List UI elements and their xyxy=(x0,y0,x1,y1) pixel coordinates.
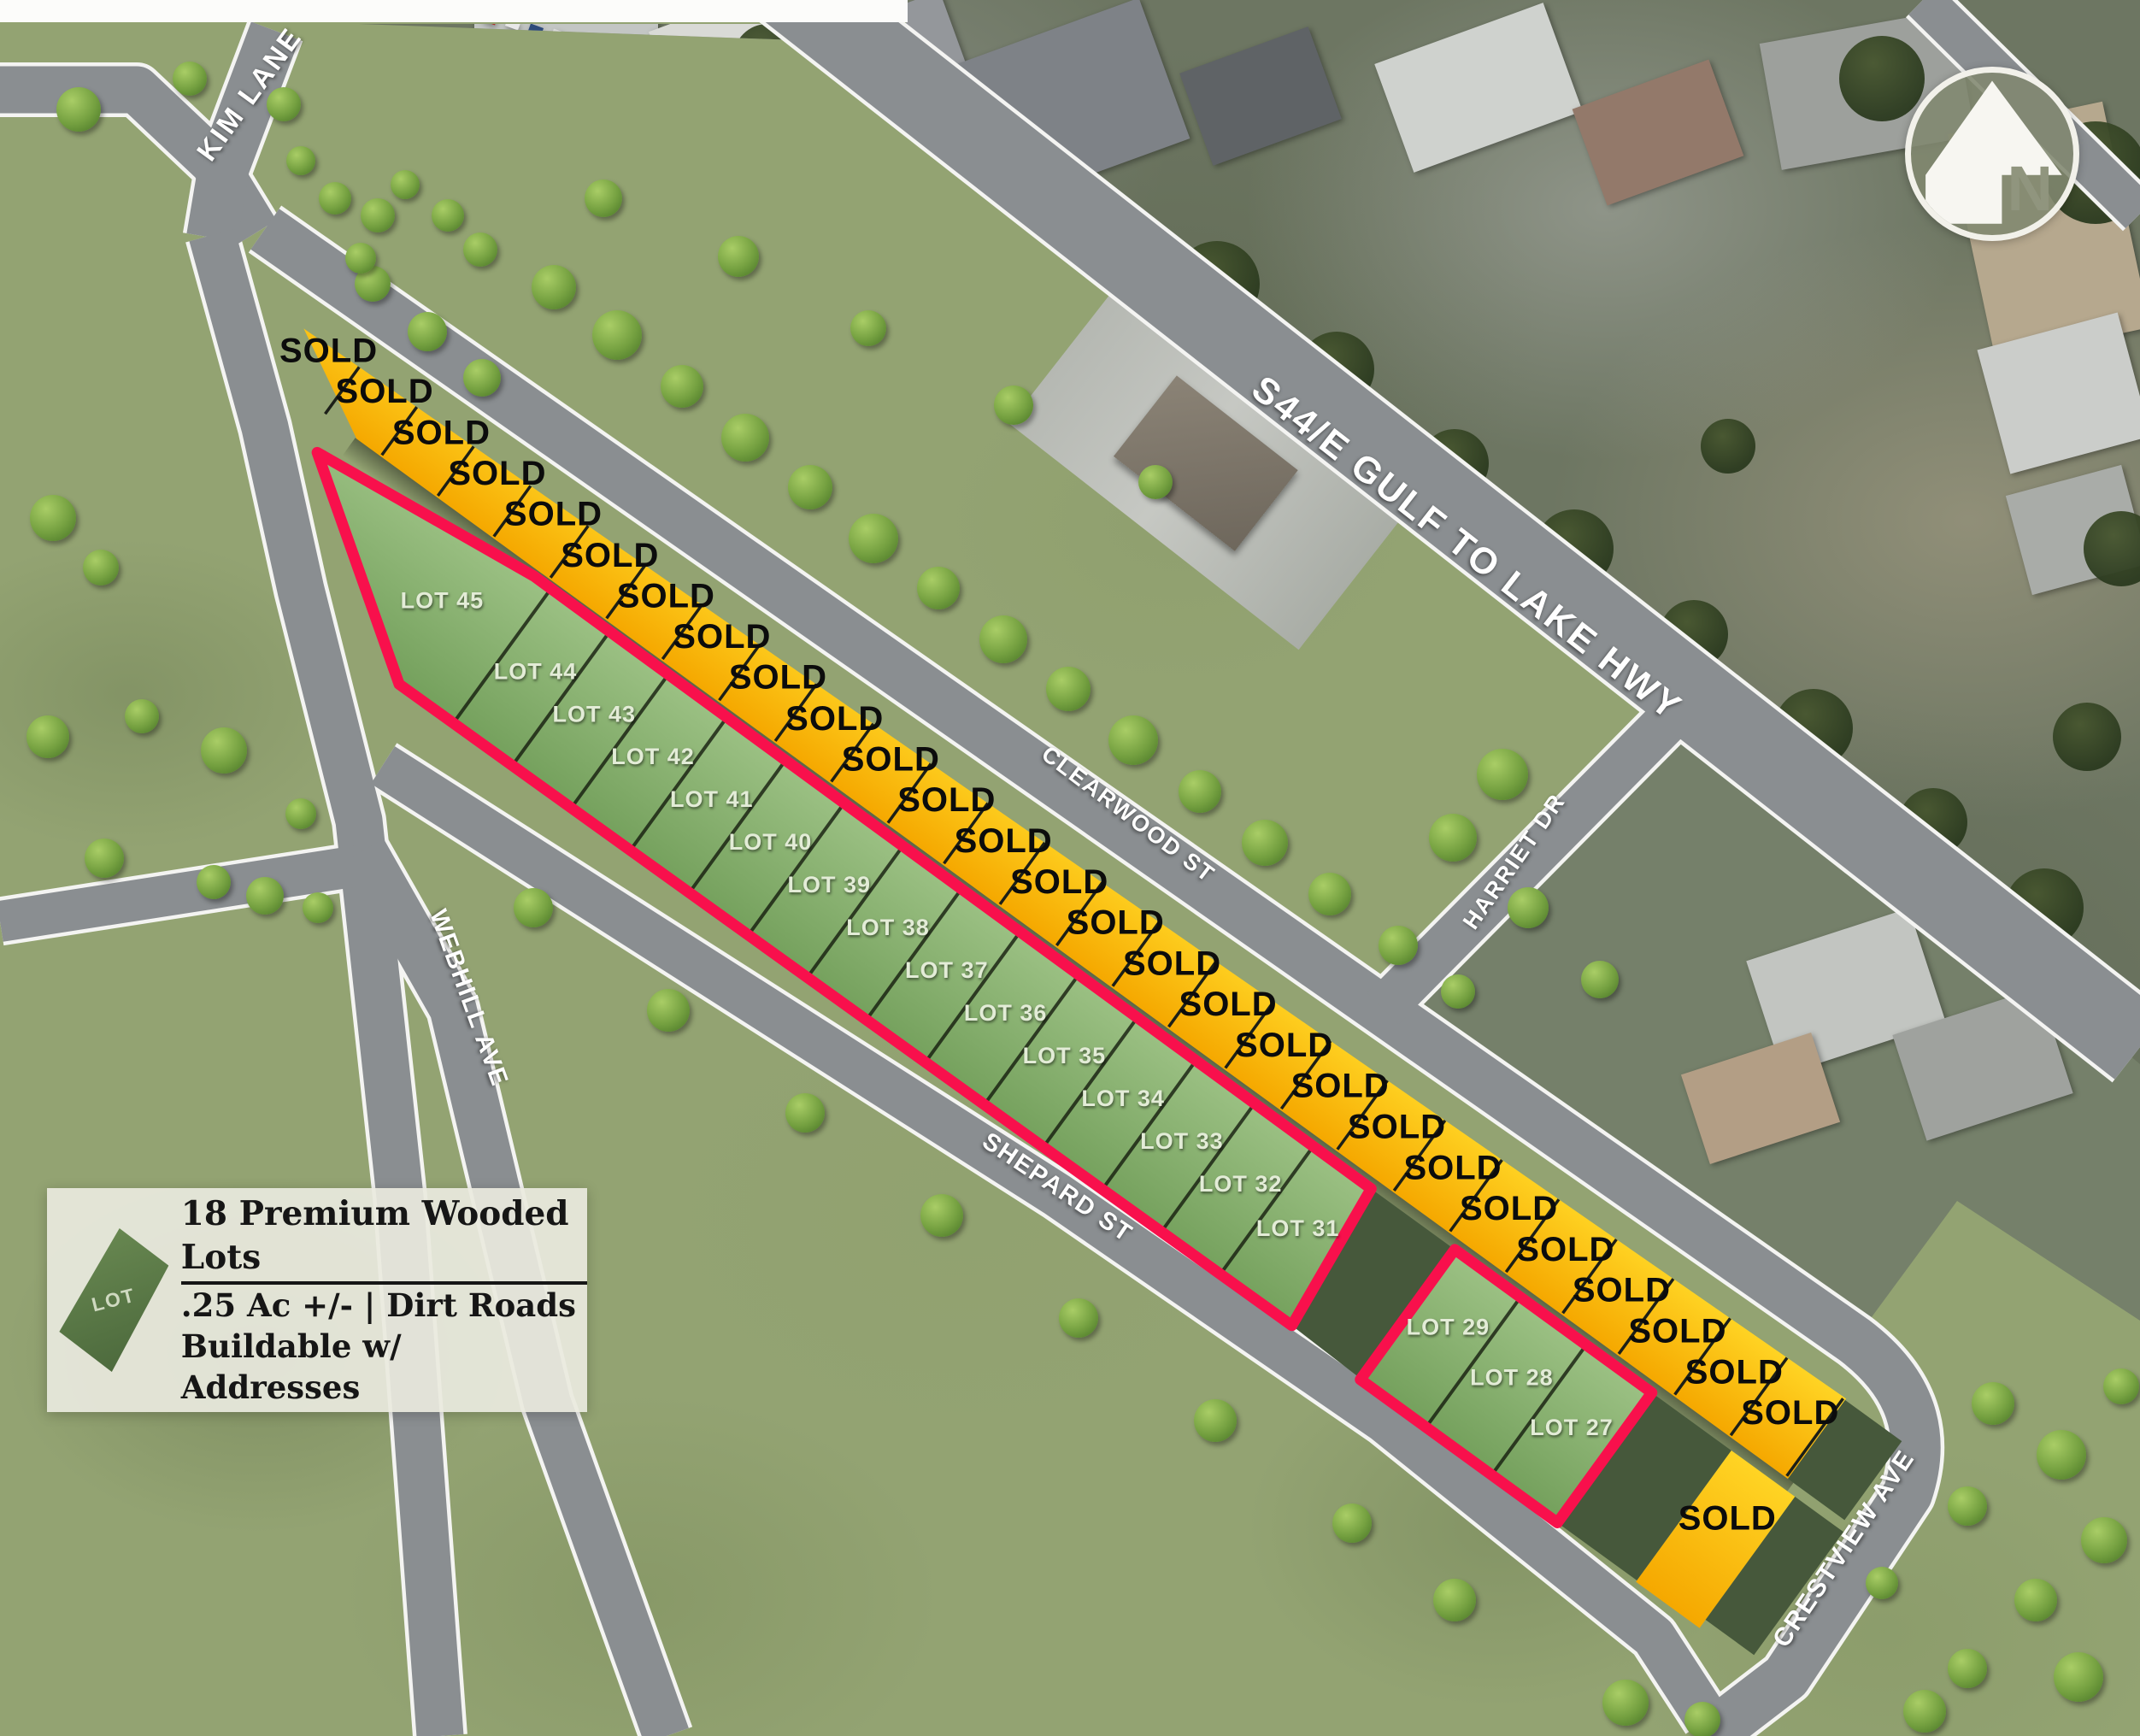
lot-label-lot-45: LOT 45 xyxy=(386,586,497,615)
lot-label-lot-43: LOT 43 xyxy=(538,699,650,728)
tree-icon xyxy=(1332,1504,1372,1543)
tree-icon xyxy=(1138,465,1173,499)
tree-icon xyxy=(1903,1690,1946,1733)
lot-label-lot-27: LOT 27 xyxy=(1516,1413,1627,1442)
sold-label: SOLD xyxy=(726,659,832,697)
sold-label: SOLD xyxy=(781,700,887,738)
sold-label-crestview: SOLD xyxy=(1674,1499,1780,1537)
tree-icon xyxy=(197,865,231,899)
tree-icon xyxy=(463,359,501,397)
tree-icon xyxy=(1108,715,1158,765)
tree-icon xyxy=(585,179,622,217)
tree-icon xyxy=(1948,1649,1987,1688)
tree-icon xyxy=(1866,1567,1898,1599)
tree-icon xyxy=(1179,770,1221,813)
lot-label-lot-32: LOT 32 xyxy=(1185,1169,1296,1198)
sold-label: SOLD xyxy=(1343,1108,1449,1145)
tree-icon xyxy=(1379,926,1418,965)
tree-icon xyxy=(432,199,464,232)
tree-icon xyxy=(920,1194,963,1237)
tree-icon xyxy=(1508,887,1549,928)
legend-box: LOT 18 Premium Wooded Lots .25 Ac +/- | … xyxy=(47,1188,587,1412)
tree-icon xyxy=(514,888,553,927)
tree-icon xyxy=(788,465,832,509)
tree-icon xyxy=(1684,1702,1720,1736)
tree-icon xyxy=(850,310,886,346)
lot-label-lot-37: LOT 37 xyxy=(891,956,1002,985)
sold-label: SOLD xyxy=(556,536,662,574)
tree-icon xyxy=(1308,873,1351,915)
tree-icon xyxy=(994,385,1033,425)
tree-icon xyxy=(785,1093,825,1133)
tree-icon xyxy=(718,236,759,277)
sold-label: SOLD xyxy=(1513,1231,1619,1268)
sold-label: SOLD xyxy=(1568,1272,1674,1309)
lot-sample-label: LOT xyxy=(90,1284,138,1317)
tree-icon xyxy=(1948,1486,1987,1526)
tree-icon xyxy=(1602,1680,1649,1726)
tree-icon xyxy=(532,265,576,309)
lot-label-lot-38: LOT 38 xyxy=(832,913,944,942)
tree-icon xyxy=(463,232,497,267)
tree-icon xyxy=(201,727,247,774)
sold-label: SOLD xyxy=(501,496,607,533)
tree-icon xyxy=(1972,1382,2014,1425)
tree-icon xyxy=(1581,961,1619,998)
tree-icon xyxy=(408,312,447,351)
tree-icon xyxy=(1477,749,1528,800)
sold-label: SOLD xyxy=(1681,1353,1787,1391)
sold-label: SOLD xyxy=(332,373,438,410)
legend-line-buildable: Buildable w/ Addresses xyxy=(181,1326,587,1408)
sold-label: SOLD xyxy=(1737,1394,1843,1432)
north-compass: N xyxy=(1905,67,2079,241)
tree-icon xyxy=(1441,974,1475,1009)
lot-label-lot-42: LOT 42 xyxy=(597,742,708,771)
tree-icon xyxy=(303,892,333,923)
tree-icon xyxy=(26,715,69,758)
sold-label: SOLD xyxy=(838,740,944,778)
tree-icon xyxy=(2081,1517,2127,1563)
tree-icon xyxy=(1242,820,1288,866)
lot-label-lot-41: LOT 41 xyxy=(656,785,767,814)
tree-icon xyxy=(319,182,351,215)
tree-icon xyxy=(285,798,316,829)
lot-label-lot-29: LOT 29 xyxy=(1392,1313,1503,1342)
tree-icon xyxy=(2014,1579,2057,1621)
tree-icon xyxy=(1429,814,1477,862)
tree-icon xyxy=(267,87,301,121)
sold-label: SOLD xyxy=(894,781,1000,819)
tree-icon xyxy=(979,615,1027,663)
lot-label-lot-31: LOT 31 xyxy=(1243,1214,1354,1243)
lot-label-lot-35: LOT 35 xyxy=(1008,1041,1120,1070)
sold-label: SOLD xyxy=(1400,1149,1506,1186)
tree-icon xyxy=(661,365,703,408)
lot-label-lot-34: LOT 34 xyxy=(1067,1084,1179,1113)
tree-icon xyxy=(56,87,101,132)
legend-icon-wrap: LOT xyxy=(47,1228,181,1372)
tree-icon xyxy=(286,146,315,175)
lot-label-lot-28: LOT 28 xyxy=(1456,1363,1567,1392)
tree-icon xyxy=(361,198,395,232)
tree-icon xyxy=(391,170,420,199)
tree-icon xyxy=(1433,1579,1476,1621)
tree-icon xyxy=(647,989,690,1032)
tree-icon xyxy=(2037,1430,2086,1480)
sold-label: SOLD xyxy=(1007,863,1113,901)
tree-icon xyxy=(125,699,159,733)
sold-label: SOLD xyxy=(1175,986,1281,1023)
tree-icon xyxy=(849,514,898,563)
tree-icon xyxy=(592,310,642,360)
lot-label-lot-40: LOT 40 xyxy=(715,827,826,856)
sold-label: SOLD xyxy=(388,414,494,451)
sold-label: SOLD xyxy=(613,577,719,615)
tree-icon xyxy=(173,62,207,96)
sold-label: SOLD xyxy=(1287,1068,1393,1105)
tree-icon xyxy=(917,567,960,609)
tree-icon xyxy=(2054,1652,2103,1702)
tree-icon xyxy=(85,839,124,878)
legend-text: 18 Premium Wooded Lots .25 Ac +/- | Dirt… xyxy=(181,1192,587,1408)
lot-label-lot-33: LOT 33 xyxy=(1126,1127,1238,1156)
tree-icon xyxy=(83,550,119,586)
sold-label: SOLD xyxy=(1232,1027,1337,1064)
wooded-lots-site-map: SOLDSOLDSOLDSOLDSOLDSOLDSOLDSOLDSOLDSOLD… xyxy=(0,0,2140,1736)
sold-label: SOLD xyxy=(1062,904,1168,942)
sold-label: SOLD xyxy=(1625,1312,1731,1350)
sold-label: SOLD xyxy=(1456,1190,1562,1227)
legend-title: 18 Premium Wooded Lots xyxy=(181,1192,587,1284)
sold-label: SOLD xyxy=(1119,945,1225,982)
tree-icon xyxy=(2103,1368,2139,1404)
lot-label-lot-39: LOT 39 xyxy=(773,870,885,899)
tree-icon xyxy=(246,877,284,915)
lot-sample-icon: LOT xyxy=(59,1228,168,1372)
sold-label: SOLD xyxy=(950,822,1056,860)
tree-icon xyxy=(721,414,769,462)
tree-icon xyxy=(1046,667,1091,711)
lot-label-lot-44: LOT 44 xyxy=(479,656,591,686)
top-white-strip xyxy=(0,0,908,22)
tree-icon xyxy=(1194,1399,1237,1442)
tree-icon xyxy=(345,243,376,274)
sold-label: SOLD xyxy=(669,618,775,656)
legend-line-acreage: .25 Ac +/- | Dirt Roads xyxy=(181,1285,587,1326)
north-letter: N xyxy=(2008,152,2053,225)
tree-icon xyxy=(1059,1298,1098,1338)
lot-label-lot-36: LOT 36 xyxy=(950,998,1061,1027)
tree-icon xyxy=(30,495,76,541)
road-harriet-dr-fill xyxy=(1383,689,1699,1009)
sold-label: SOLD xyxy=(276,332,382,370)
sold-label: SOLD xyxy=(444,455,550,492)
